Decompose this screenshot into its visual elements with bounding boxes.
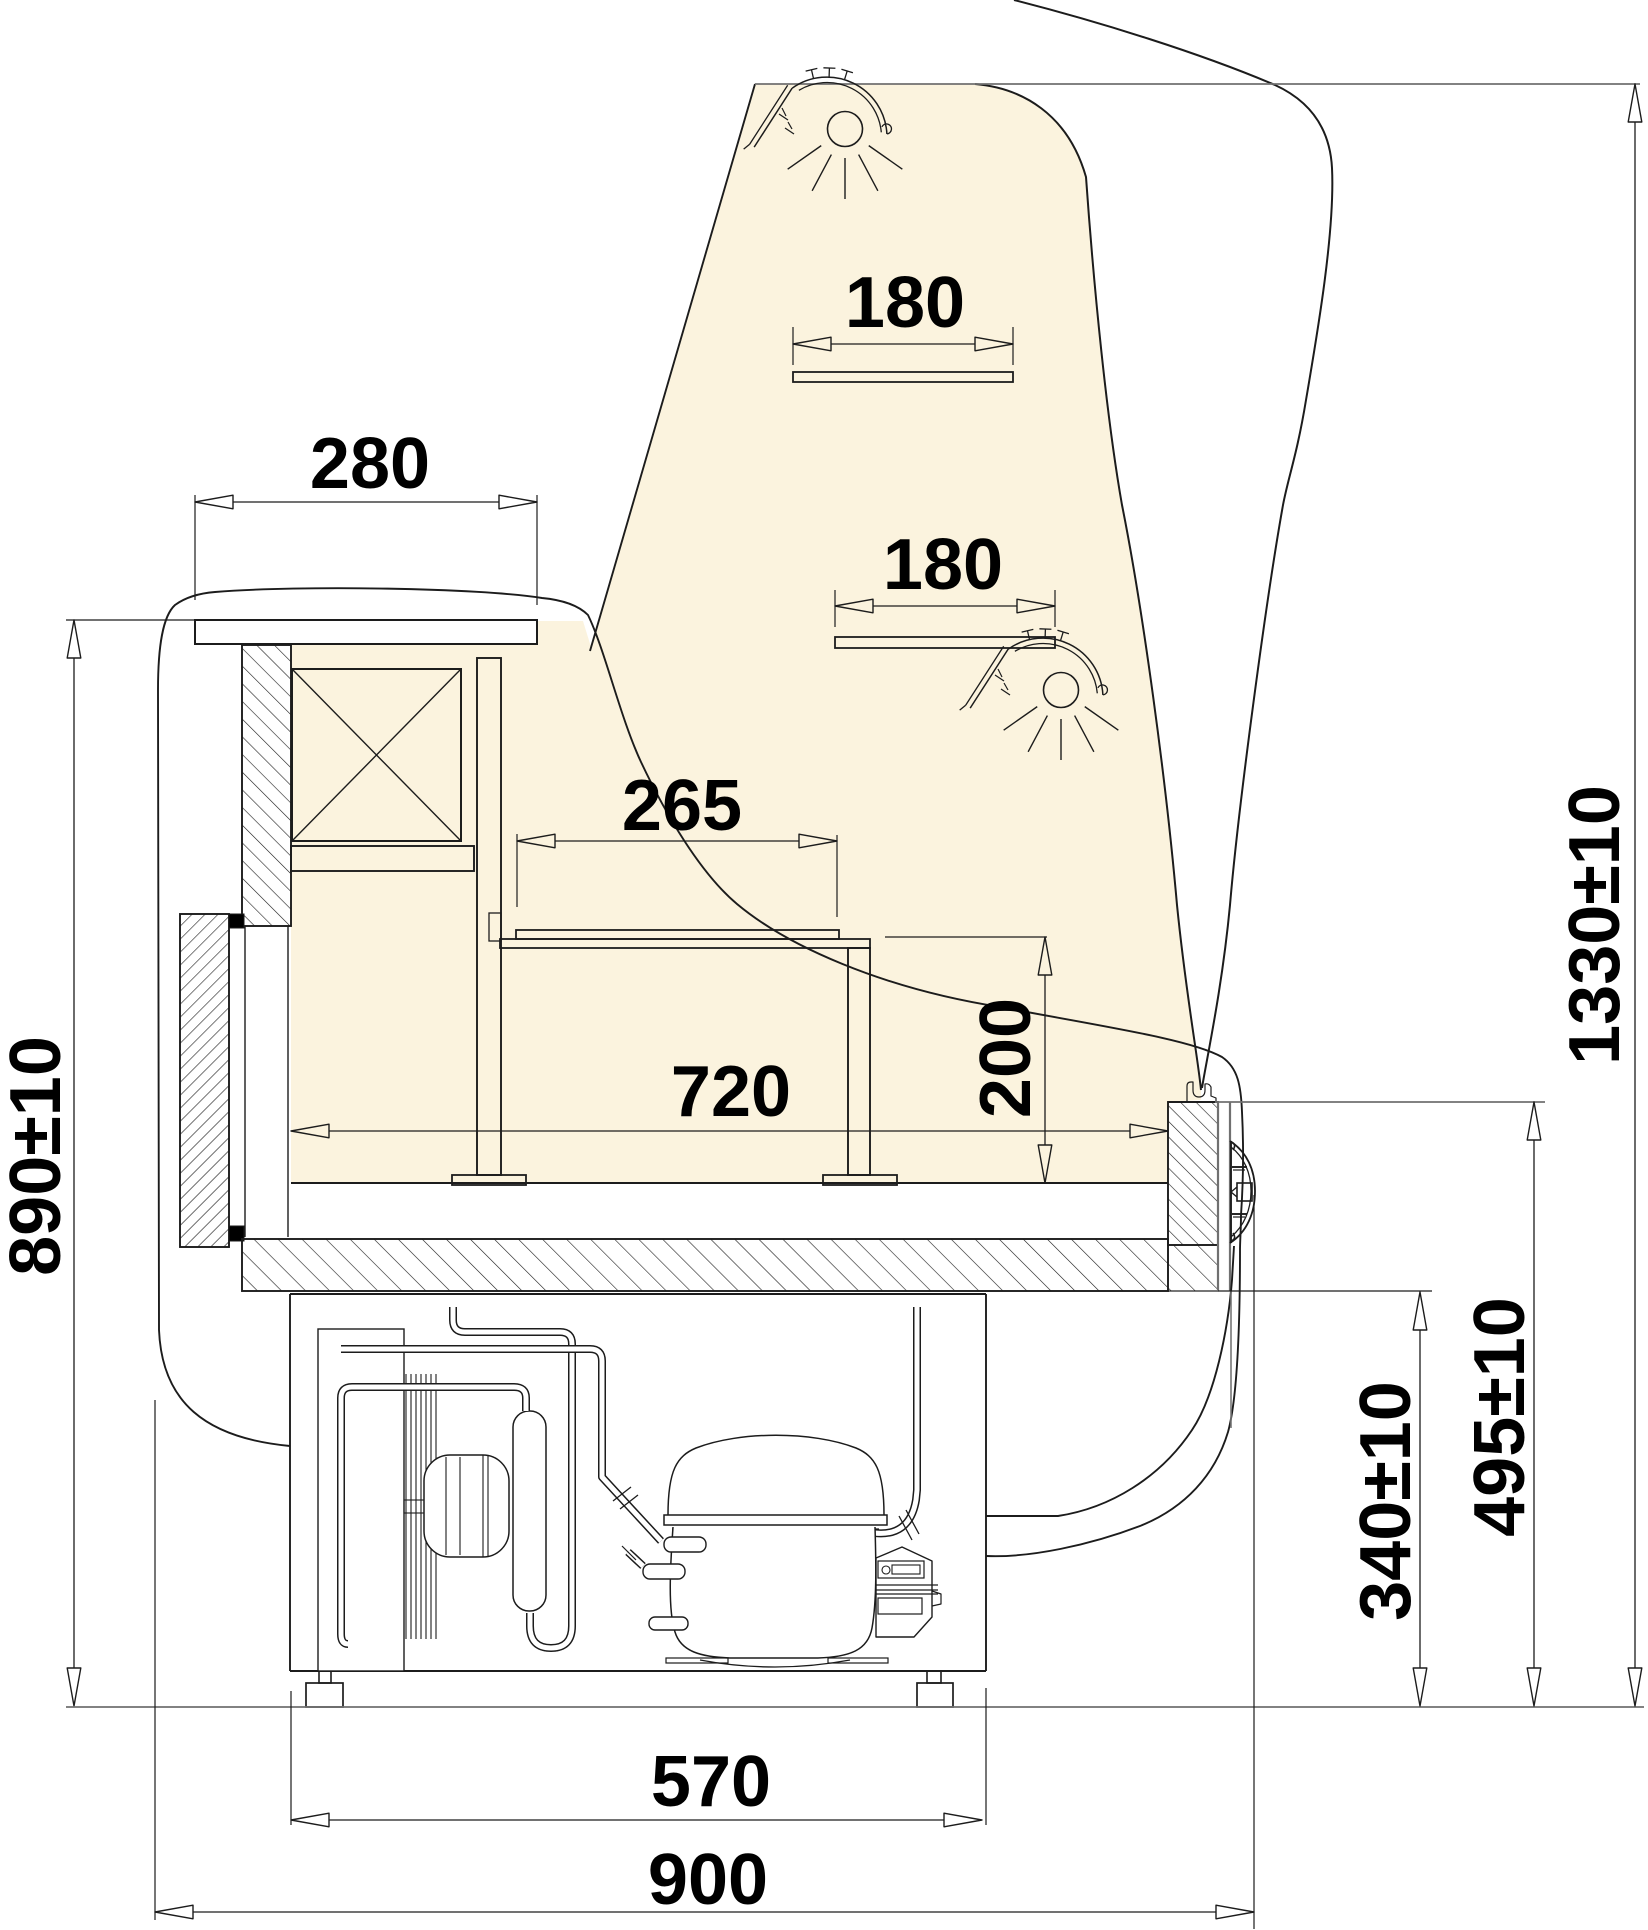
svg-text:265: 265 — [622, 766, 742, 846]
svg-text:720: 720 — [671, 1052, 791, 1132]
svg-text:180: 180 — [845, 263, 965, 343]
svg-text:890±10: 890±10 — [0, 1036, 76, 1276]
svg-text:495±10: 495±10 — [1460, 1297, 1540, 1537]
svg-text:180: 180 — [883, 525, 1003, 605]
svg-text:200: 200 — [966, 998, 1046, 1118]
svg-text:570: 570 — [651, 1742, 771, 1822]
svg-text:280: 280 — [310, 424, 430, 504]
svg-text:900: 900 — [648, 1840, 768, 1920]
svg-text:1330±10: 1330±10 — [1555, 785, 1635, 1065]
svg-text:340±10: 340±10 — [1346, 1381, 1426, 1621]
